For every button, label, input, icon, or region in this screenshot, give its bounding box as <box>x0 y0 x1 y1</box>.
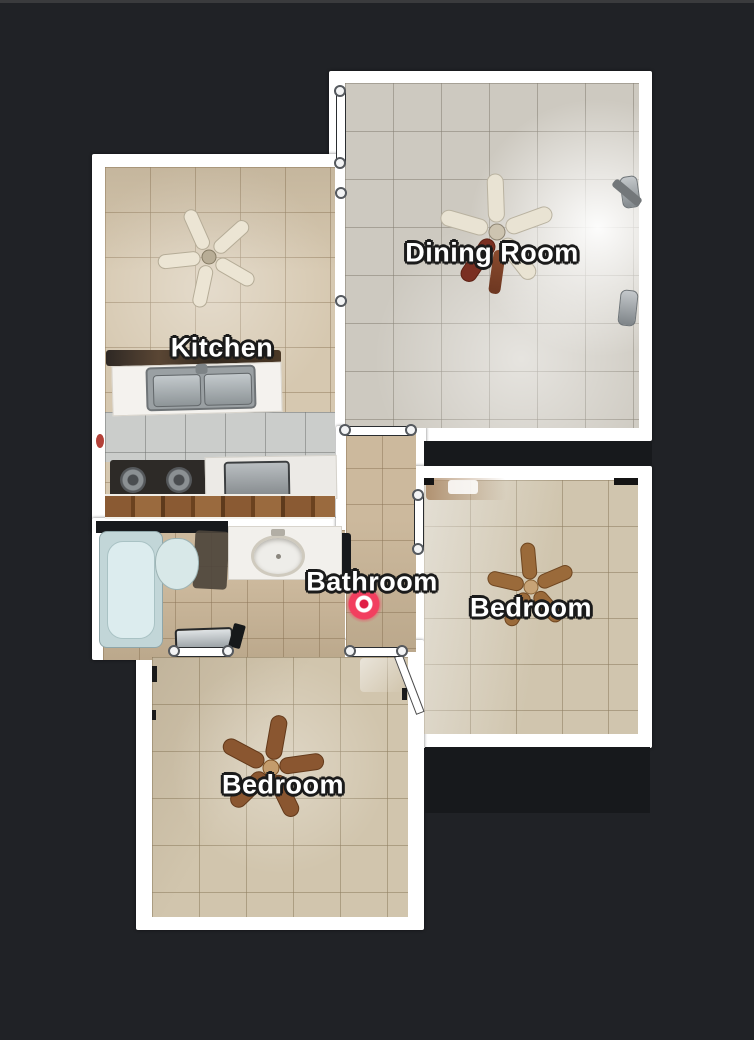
wall-node <box>335 295 347 307</box>
top-border <box>0 0 754 3</box>
room-label-bedroom-right: Bedroom <box>470 593 592 624</box>
sink-basin <box>204 373 253 406</box>
wall-node <box>334 157 346 169</box>
void-gap <box>424 441 652 466</box>
toilet <box>155 538 199 590</box>
double-sink <box>145 365 256 412</box>
wall-node <box>168 645 180 657</box>
wall-node <box>405 424 417 436</box>
debris <box>448 480 478 494</box>
door-marker <box>344 426 414 436</box>
room-label-bathroom: Bathroom <box>306 567 438 598</box>
debris <box>96 434 104 448</box>
room-label-dining: Dining Room <box>405 238 578 269</box>
faucet <box>271 529 285 536</box>
room-label-bedroom-bottom: Bedroom <box>222 770 344 801</box>
ceiling-fan-icon <box>471 527 591 647</box>
corner-mark <box>614 478 638 485</box>
wall-node <box>412 489 424 501</box>
faucet <box>195 364 207 374</box>
door-hardware <box>617 289 639 327</box>
floorplan-canvas: Dining Room Kitchen Bathroom Bedroom Bed… <box>0 0 754 1040</box>
wall-node <box>335 187 347 199</box>
ceiling-fan-icon <box>437 172 557 292</box>
stove <box>110 460 208 498</box>
corner-mark <box>152 710 156 720</box>
corner-mark <box>402 688 407 700</box>
wall-node <box>396 645 408 657</box>
sink-basin <box>153 374 202 407</box>
door-marker <box>336 90 346 166</box>
corner-mark <box>152 666 157 682</box>
bathtub <box>99 531 163 648</box>
vanity-sink <box>251 535 305 577</box>
wall-node <box>222 645 234 657</box>
wall-node <box>339 424 351 436</box>
wall-node <box>334 85 346 97</box>
wall-node <box>344 645 356 657</box>
ceiling-fan-icon <box>211 708 331 828</box>
wall-node <box>412 543 424 555</box>
void-gap <box>425 747 650 813</box>
bathtub-basin <box>107 541 155 639</box>
drain <box>276 554 281 559</box>
room-label-kitchen: Kitchen <box>171 333 274 364</box>
cabinet-wood-strip <box>105 494 335 519</box>
ceiling-fan-icon <box>149 197 269 317</box>
corner-mark <box>424 478 434 485</box>
burner <box>166 467 192 493</box>
burner <box>120 467 146 493</box>
